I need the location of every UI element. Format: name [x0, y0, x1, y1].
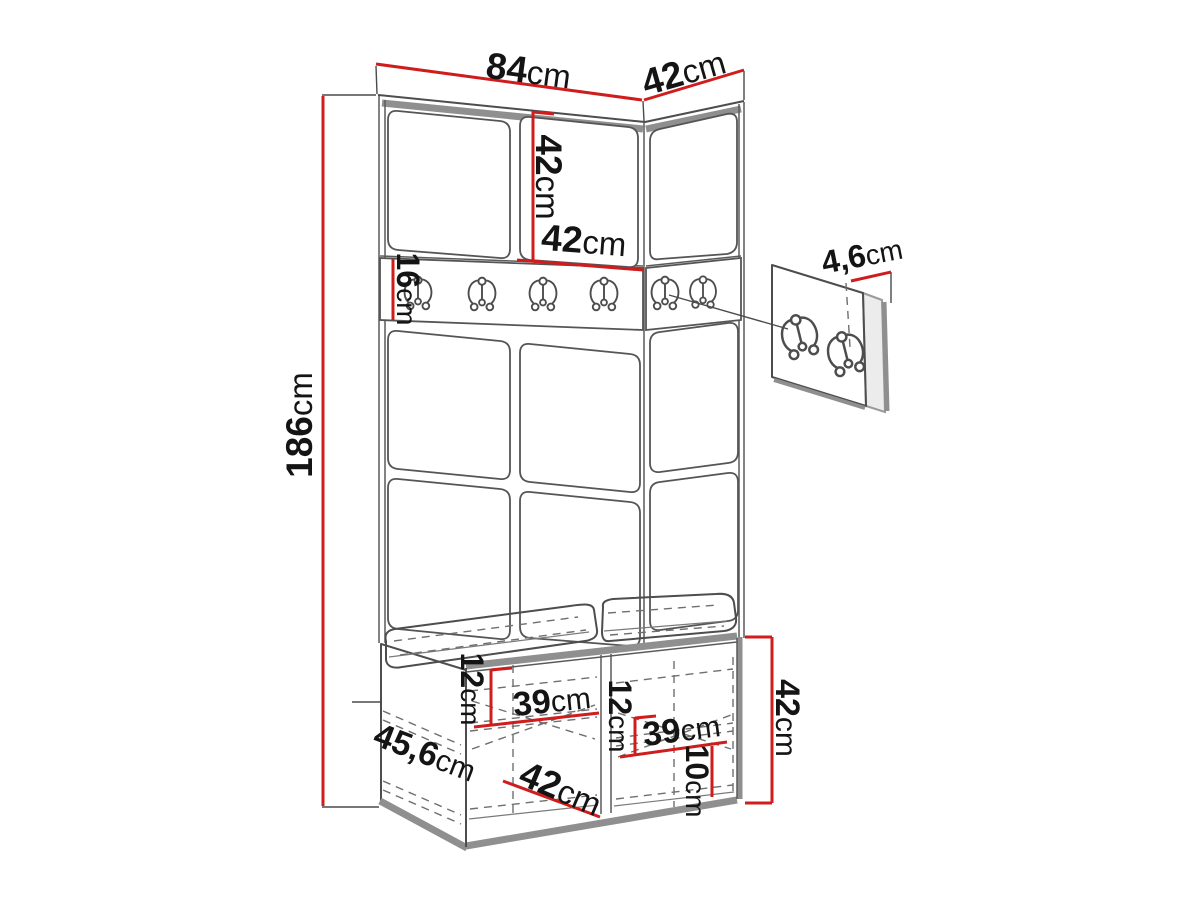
cabinet-door-side [650, 114, 737, 260]
dimension-label-front-width: 84cm [484, 45, 574, 97]
coat-hook-icon [778, 311, 822, 361]
wall-panels [388, 323, 738, 646]
wall-panel [520, 344, 640, 492]
cabinet-door-left [388, 111, 510, 258]
dimension-label-bench-height: 42cm [768, 679, 806, 757]
furniture-dimension-diagram: 84cm 42cm 42cm 42cm 16cm 186cm 4,6cm 12c… [0, 0, 1200, 900]
wall-panel [388, 331, 510, 479]
coat-hook-rail [380, 258, 741, 330]
wall-panel [388, 479, 510, 639]
dimension-label-plinth-height: 10cm [679, 745, 715, 818]
hook-panel-bottom-edge [774, 380, 865, 408]
wall-panel [650, 323, 738, 472]
dimension-label-right-inner-height: 12cm [602, 680, 638, 753]
coat-hook-icon [824, 328, 868, 378]
dimension-label-rail-height: 16cm [390, 253, 426, 326]
hook-panel-detail [772, 265, 887, 412]
dimension-label-total-height: 186cm [279, 372, 320, 478]
hook-rail-side [646, 258, 741, 330]
dimension-label-panel-thickness: 4,6cm [818, 230, 905, 281]
diagram-svg: 84cm 42cm 42cm 42cm 16cm 186cm 4,6cm 12c… [0, 0, 1200, 900]
dimension-label-left-inner-height: 12cm [454, 653, 490, 726]
wall-panel [520, 492, 640, 646]
dimension-label-side-width: 42cm [637, 41, 730, 104]
dimension-label-bench-depth: 45,6cm [369, 716, 482, 790]
hook-panel-right-edge [884, 302, 887, 411]
dimension-label-door-height: 42cm [528, 134, 569, 219]
